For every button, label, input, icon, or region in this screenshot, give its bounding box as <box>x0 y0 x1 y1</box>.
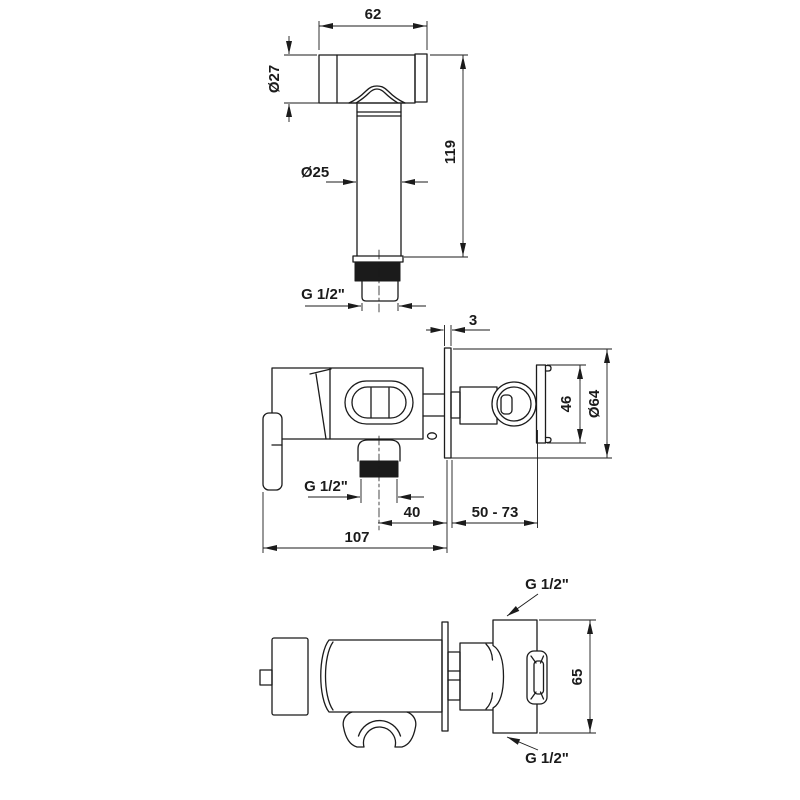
dim-inlet-thread-bottom: G 1/2" <box>507 737 569 767</box>
dim-label-outlet-thread: G 1/2" <box>304 478 348 495</box>
wall-plate <box>445 348 452 458</box>
sprayer-thread <box>355 262 400 281</box>
dim-label-holder-height: 46 <box>558 396 575 413</box>
dim-plate-thickness: 3 <box>426 312 490 346</box>
mixer-body-top <box>321 640 442 712</box>
mixer-lever <box>263 413 282 490</box>
dim-holder-height: 46 <box>547 365 586 443</box>
drawing-canvas: 62 Ø27 Ø25 119 G 1/2" <box>0 0 800 800</box>
dim-total-length: 119 <box>404 55 468 257</box>
dim-label-head-diameter: Ø27 <box>266 65 283 93</box>
mixer-top-outline <box>260 620 547 747</box>
dim-label-head-width: 62 <box>365 6 382 23</box>
sprayer-outline <box>319 54 427 312</box>
dim-label-plate-thickness: 3 <box>469 312 477 329</box>
dim-label-total-length: 119 <box>442 140 459 164</box>
hose-connection-ring <box>492 382 536 426</box>
dim-inlet-thread-top: G 1/2" <box>507 576 569 616</box>
lever-tip <box>260 670 272 685</box>
sprayer-head-cap <box>415 54 427 102</box>
dim-head-diameter: Ø27 <box>266 36 347 122</box>
sprayer-head <box>319 55 415 103</box>
dim-head-width: 62 <box>319 6 427 50</box>
mixer-top-down-view: 65 G 1/2" G 1/2" <box>260 576 596 767</box>
lever-knob <box>272 638 308 715</box>
dim-label-outlet-to-wall: 40 <box>404 504 421 521</box>
dim-label-inlet-thread-bottom: G 1/2" <box>525 750 569 767</box>
dim-label-body-height: 65 <box>569 669 586 686</box>
mixer-side-view: 3 46 Ø64 G 1/2" <box>263 312 612 553</box>
dim-label-inlet-thread-top: G 1/2" <box>525 576 569 593</box>
sprayer-collar <box>353 256 403 262</box>
wall-plate-top-view <box>442 622 448 731</box>
dim-sprayer-thread: G 1/2" <box>301 286 426 311</box>
dim-label-installation-depth: 50 - 73 <box>472 504 519 521</box>
dim-handle-diameter: Ø25 <box>301 164 428 182</box>
technical-drawing-page: 62 Ø27 Ø25 119 G 1/2" <box>0 0 800 800</box>
dim-label-plate-diameter: Ø64 <box>586 389 603 418</box>
holder-fork <box>343 712 416 747</box>
dim-label-total-depth: 107 <box>344 529 369 546</box>
hand-sprayer-view: 62 Ø27 Ø25 119 G 1/2" <box>266 6 468 312</box>
mixer-side-outline <box>263 348 551 530</box>
dim-label-handle-diameter: Ø25 <box>301 164 329 181</box>
sprayer-connector-end <box>362 281 398 301</box>
dim-total-depth: 107 <box>263 529 447 548</box>
dim-outlet-thread: G 1/2" <box>304 478 424 503</box>
dim-label-sprayer-thread: G 1/2" <box>301 286 345 303</box>
dim-installation-depth: 50 - 73 <box>452 504 538 523</box>
